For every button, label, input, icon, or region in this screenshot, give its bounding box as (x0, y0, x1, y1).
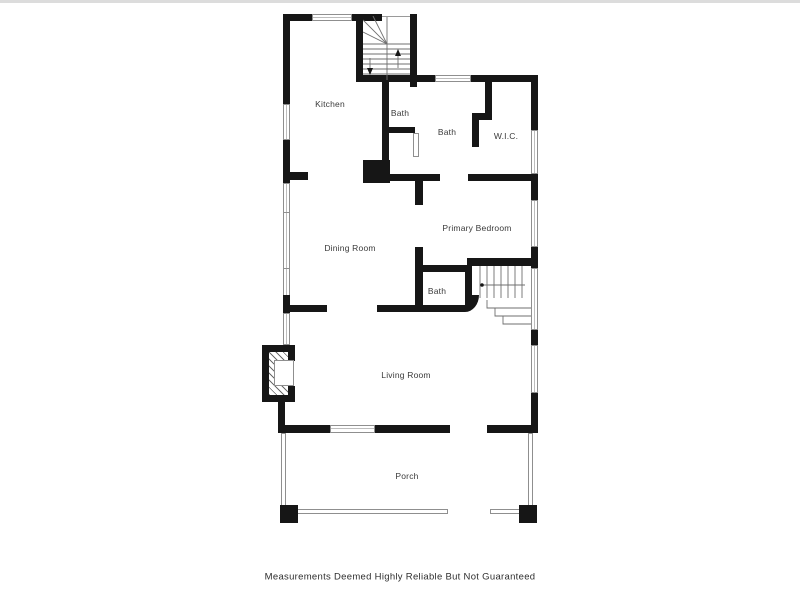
firebox (274, 360, 294, 386)
wall (531, 247, 538, 268)
wall (465, 265, 472, 298)
fireplace-wall (288, 345, 295, 361)
image-edge-strip (0, 0, 800, 3)
up-arrow-icon (395, 49, 401, 56)
window (283, 268, 290, 296)
wall (283, 172, 308, 180)
room-label-bath-main: Bath (438, 127, 456, 137)
wall (415, 180, 423, 205)
wall (468, 174, 531, 181)
wall (410, 14, 417, 87)
stair-direction-dot (480, 283, 484, 287)
floor-plan: Kitchen Bath Bath W.I.C. Dining Room Pri… (0, 0, 800, 600)
fireplace-wall (262, 345, 269, 402)
porch-post (519, 505, 537, 523)
window (435, 75, 471, 82)
chimney (363, 160, 390, 183)
window (283, 313, 290, 345)
room-label-kitchen: Kitchen (315, 99, 345, 109)
wall (356, 14, 363, 82)
fireplace-wall (288, 386, 295, 402)
wall (283, 305, 327, 312)
room-label-bath-lower: Bath (428, 286, 446, 296)
porch-wall (528, 433, 533, 509)
staircase-up (363, 16, 410, 82)
room-label-dining-room: Dining Room (324, 243, 375, 253)
wall (389, 127, 415, 133)
wall (472, 113, 479, 147)
window (531, 130, 538, 174)
staircase-down (472, 266, 531, 330)
room-label-living-room: Living Room (381, 370, 430, 380)
porch-post (280, 505, 298, 523)
wall (421, 265, 467, 272)
porch-wall (281, 433, 286, 509)
wall (531, 330, 538, 345)
window (283, 212, 290, 269)
wall (487, 425, 538, 433)
wall (531, 174, 538, 200)
wall (417, 75, 435, 82)
wall (531, 75, 538, 130)
wall (415, 247, 423, 312)
door-leaf (413, 133, 419, 157)
room-label-porch: Porch (395, 471, 418, 481)
room-label-primary-bedroom: Primary Bedroom (442, 223, 511, 233)
window (531, 345, 538, 393)
window (531, 268, 538, 330)
wall (278, 425, 330, 433)
window (330, 425, 375, 433)
window (312, 14, 352, 21)
room-label-wic: W.I.C. (494, 131, 518, 141)
window (283, 104, 290, 140)
window (283, 183, 290, 213)
porch-wall (286, 509, 448, 514)
window (531, 200, 538, 247)
wall (382, 82, 389, 160)
wall (471, 75, 538, 82)
wall (467, 258, 531, 266)
room-label-bath-upper: Bath (391, 108, 409, 118)
wall (283, 14, 290, 104)
wall (375, 425, 450, 433)
wall (377, 305, 465, 312)
disclaimer-text: Measurements Deemed Highly Reliable But … (265, 572, 536, 583)
